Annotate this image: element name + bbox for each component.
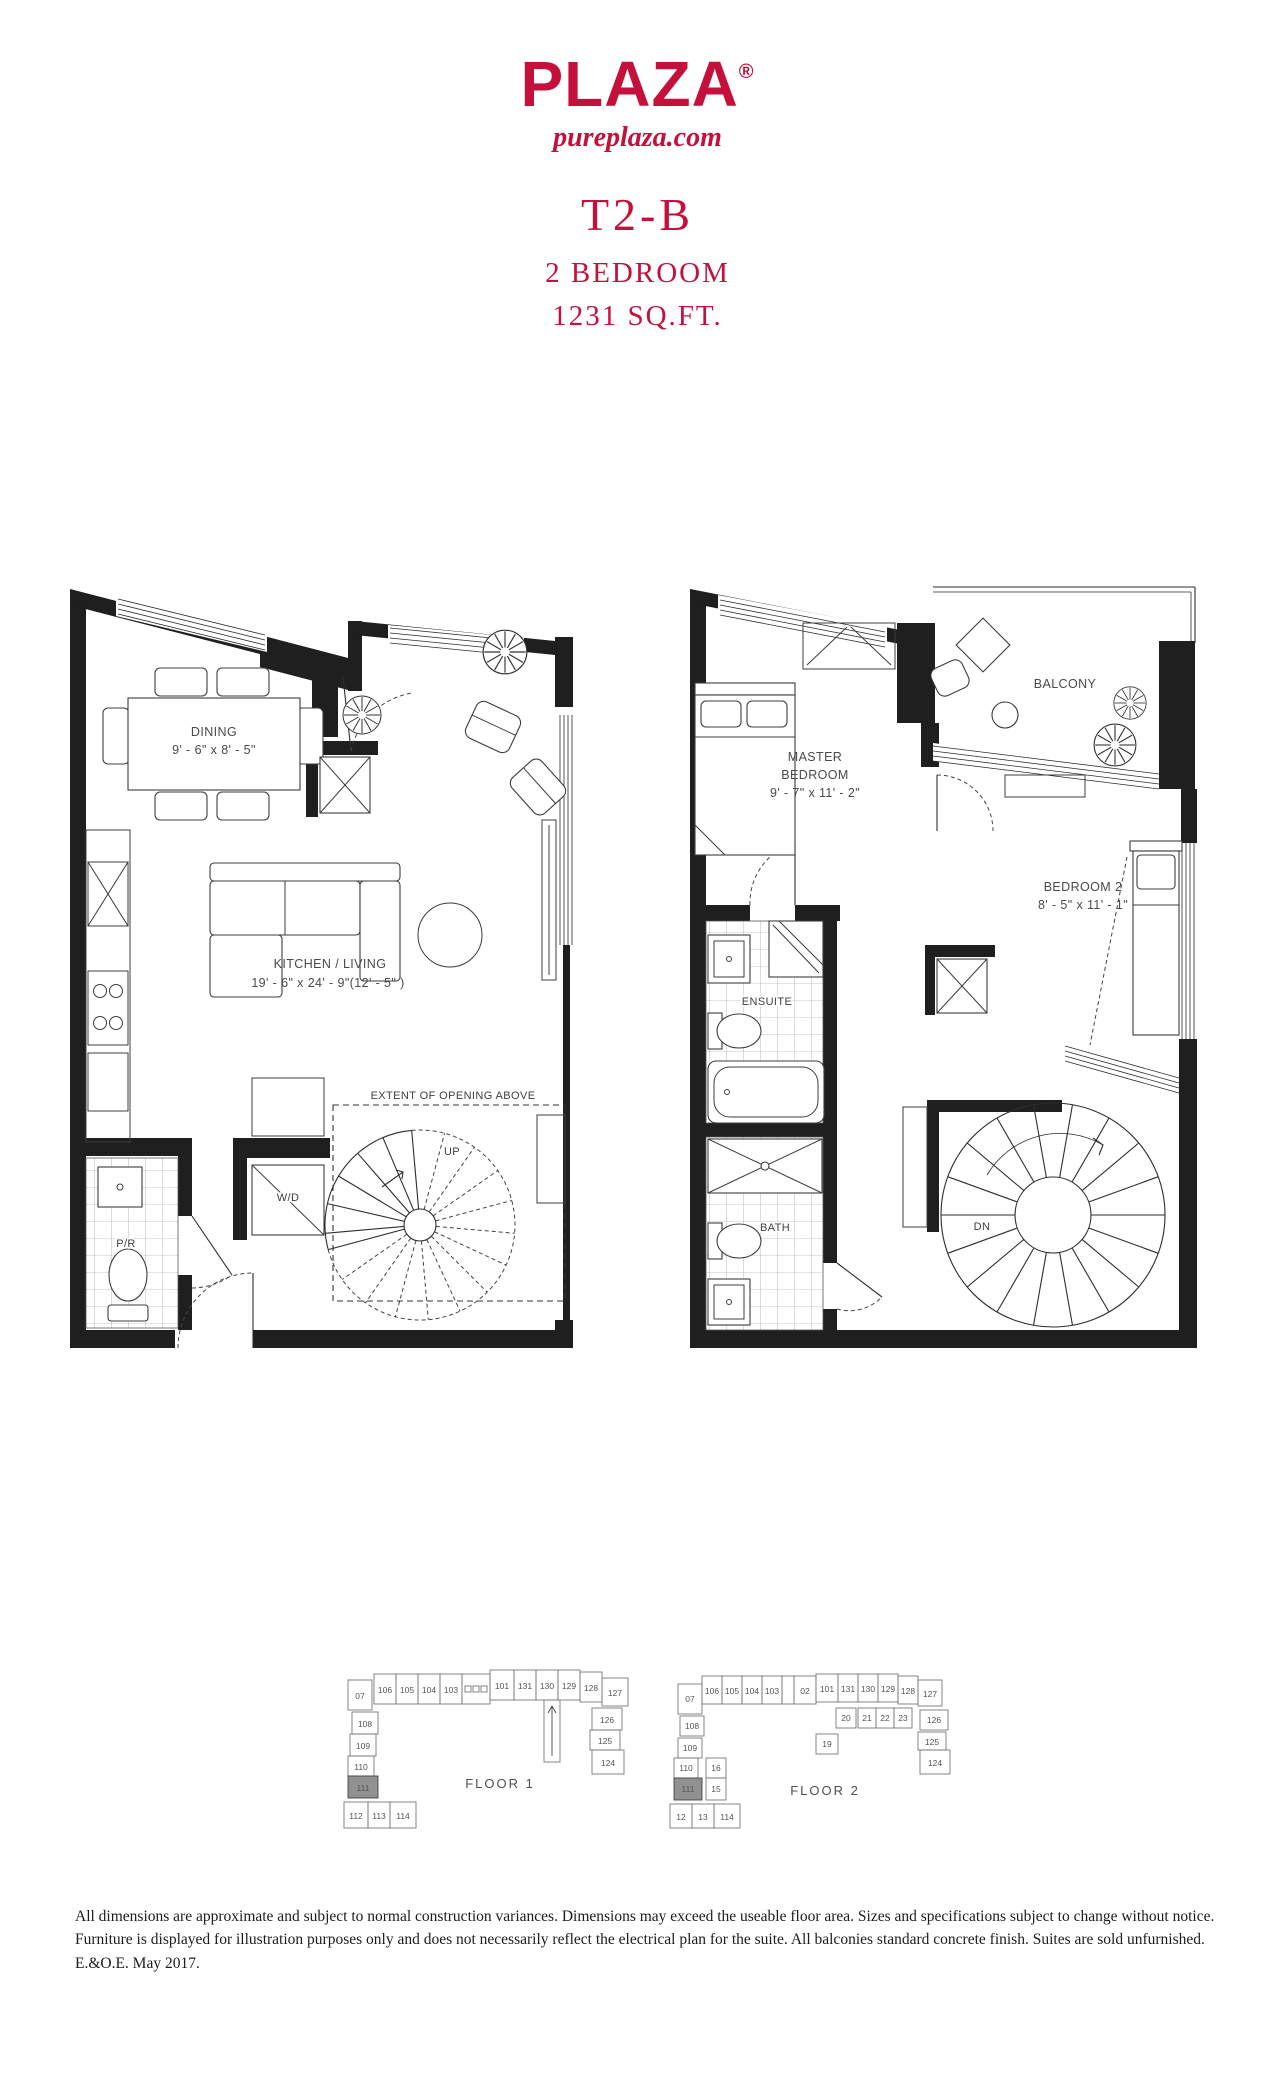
svg-text:101: 101 [495, 1681, 509, 1691]
svg-text:12: 12 [676, 1812, 686, 1822]
svg-text:106: 106 [705, 1686, 719, 1696]
extent-of-opening-label: EXTENT OF OPENING ABOVE [371, 1090, 536, 1102]
room-label-powder-room: P/R [116, 1238, 136, 1250]
closet [252, 1078, 324, 1136]
svg-text:131: 131 [841, 1684, 855, 1694]
master-bed [695, 683, 795, 855]
svg-text:15: 15 [711, 1784, 721, 1794]
svg-text:128: 128 [901, 1686, 915, 1696]
suite-area: 1231 SQ.FT. [0, 300, 1275, 333]
tree-icon [483, 630, 527, 674]
svg-text:105: 105 [725, 1686, 739, 1696]
keyplan-floor1: 07 106 105 104 103 101 131 130 129 128 1… [330, 1650, 650, 1845]
svg-text:23: 23 [898, 1713, 908, 1723]
brand-logo: PLAZA® [0, 52, 1275, 116]
svg-text:21: 21 [862, 1713, 872, 1723]
room-label-kitchen-living: KITCHEN / LIVING [274, 957, 387, 971]
room-dims-master: 9' - 7" x 11' - 2" [770, 786, 860, 800]
spiral-stair-down [941, 1103, 1165, 1327]
svg-text:126: 126 [600, 1715, 614, 1725]
floor-plan-level2: MASTER BEDROOM 9' - 7" x 11' - 2" BALCON… [675, 575, 1215, 1375]
label-washer-dryer: W/D [277, 1192, 300, 1204]
svg-text:109: 109 [683, 1743, 697, 1753]
header: PLAZA® pureplaza.com T2-B 2 BEDROOM 1231… [0, 52, 1275, 333]
armchair [463, 699, 523, 756]
kitchen-counter [86, 830, 130, 1142]
svg-text:02: 02 [800, 1686, 810, 1696]
keyplan-floor1-label: FLOOR 1 [465, 1776, 535, 1791]
tree-icon [1094, 724, 1136, 766]
tree-icon [1114, 687, 1146, 719]
elevator-shaft [937, 959, 987, 1013]
stairs-down-label: DN [974, 1221, 991, 1233]
svg-text:106: 106 [378, 1685, 392, 1695]
svg-text:103: 103 [765, 1686, 779, 1696]
svg-text:104: 104 [745, 1686, 759, 1696]
ensuite [706, 921, 824, 1123]
svg-text:103: 103 [444, 1685, 458, 1695]
page: { "header": { "brand": "PLAZA", "registe… [0, 0, 1275, 2100]
room-label-bedroom2: BEDROOM 2 [1044, 880, 1123, 894]
coffee-table [418, 903, 482, 967]
svg-text:07: 07 [685, 1694, 695, 1704]
brand-text: PLAZA [520, 48, 738, 120]
website-text: pureplaza.com [0, 122, 1275, 154]
room-label-dining: DINING [191, 725, 237, 739]
svg-text:101: 101 [820, 1684, 834, 1694]
room-label-master-1: MASTER [788, 750, 843, 764]
svg-text:125: 125 [925, 1737, 939, 1747]
keyplan-floor2: 07 106 105 104 103 02 101 131 130 129 12… [660, 1650, 980, 1845]
balcony-furniture [928, 618, 1018, 728]
svg-text:13: 13 [698, 1812, 708, 1822]
svg-text:108: 108 [685, 1721, 699, 1731]
keyplan-floor2-label: FLOOR 2 [790, 1783, 860, 1798]
svg-text:19: 19 [822, 1739, 832, 1749]
suite-type: 2 BEDROOM [0, 257, 1275, 290]
svg-text:127: 127 [608, 1688, 622, 1698]
svg-text:130: 130 [540, 1681, 554, 1691]
closet [903, 1107, 927, 1227]
keyplan-units [670, 1674, 950, 1828]
room-label-bath: BATH [760, 1222, 790, 1234]
svg-text:114: 114 [396, 1811, 410, 1821]
svg-text:126: 126 [927, 1715, 941, 1725]
svg-text:111: 111 [357, 1783, 370, 1793]
svg-text:124: 124 [601, 1758, 615, 1768]
registered-mark: ® [739, 61, 755, 83]
tree-icon [343, 696, 381, 734]
stairs-up-label: UP [444, 1146, 460, 1158]
svg-text:130: 130 [861, 1684, 875, 1694]
room-dims-dining: 9' - 6" x 8' - 5" [172, 743, 256, 757]
suite-model: T2-B [0, 188, 1275, 241]
svg-text:16: 16 [711, 1763, 721, 1773]
svg-text:20: 20 [841, 1713, 851, 1723]
stair-ledge [537, 1115, 565, 1203]
svg-text:22: 22 [880, 1713, 890, 1723]
svg-text:131: 131 [518, 1681, 532, 1691]
floor-plan-level1: DINING 9' - 6" x 8' - 5" KITCHEN / LIVIN… [60, 575, 600, 1375]
spiral-stair-up [325, 1130, 515, 1320]
svg-text:110: 110 [354, 1762, 368, 1772]
svg-text:125: 125 [598, 1736, 612, 1746]
svg-text:128: 128 [584, 1683, 598, 1693]
room-dims-bedroom2: 8' - 5" x 11' - 1" [1038, 898, 1128, 912]
svg-text:110: 110 [679, 1763, 693, 1773]
svg-text:114: 114 [720, 1812, 734, 1822]
svg-text:104: 104 [422, 1685, 436, 1695]
keyplan-unit-numbers: 07 106 105 104 103 02 101 131 130 129 12… [676, 1684, 942, 1822]
svg-text:129: 129 [562, 1681, 576, 1691]
elevator-shaft [320, 757, 370, 813]
svg-text:129: 129 [881, 1684, 895, 1694]
svg-text:105: 105 [400, 1685, 414, 1695]
svg-text:108: 108 [358, 1719, 372, 1729]
svg-text:113: 113 [372, 1811, 386, 1821]
svg-text:112: 112 [349, 1811, 363, 1821]
room-dims-kitchen-living: 19' - 6" x 24' - 9"(12' - 5" ) [251, 976, 404, 990]
room-label-balcony: BALCONY [1034, 677, 1097, 691]
svg-text:124: 124 [928, 1758, 942, 1768]
room-label-master-2: BEDROOM [781, 768, 848, 782]
svg-text:109: 109 [356, 1741, 370, 1751]
svg-text:07: 07 [355, 1691, 365, 1701]
room-label-ensuite: ENSUITE [742, 996, 792, 1008]
disclaimer-text: All dimensions are approximate and subje… [75, 1905, 1215, 1975]
svg-text:111: 111 [682, 1784, 695, 1794]
svg-text:127: 127 [923, 1689, 937, 1699]
